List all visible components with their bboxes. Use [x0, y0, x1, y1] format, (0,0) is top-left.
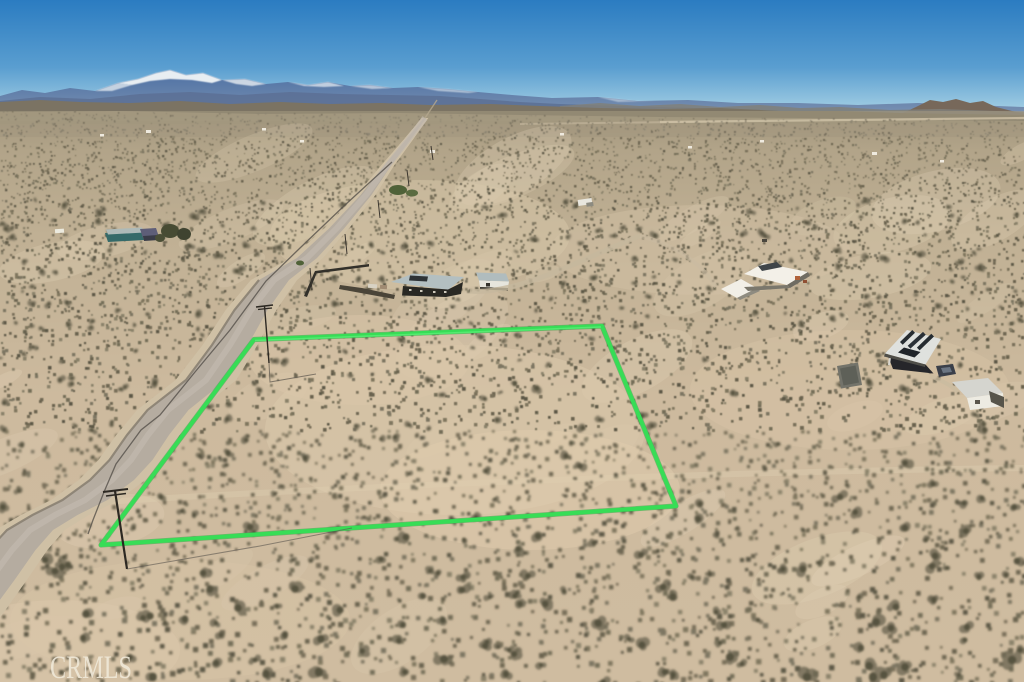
svg-text:CRMLS: CRMLS [50, 650, 132, 682]
